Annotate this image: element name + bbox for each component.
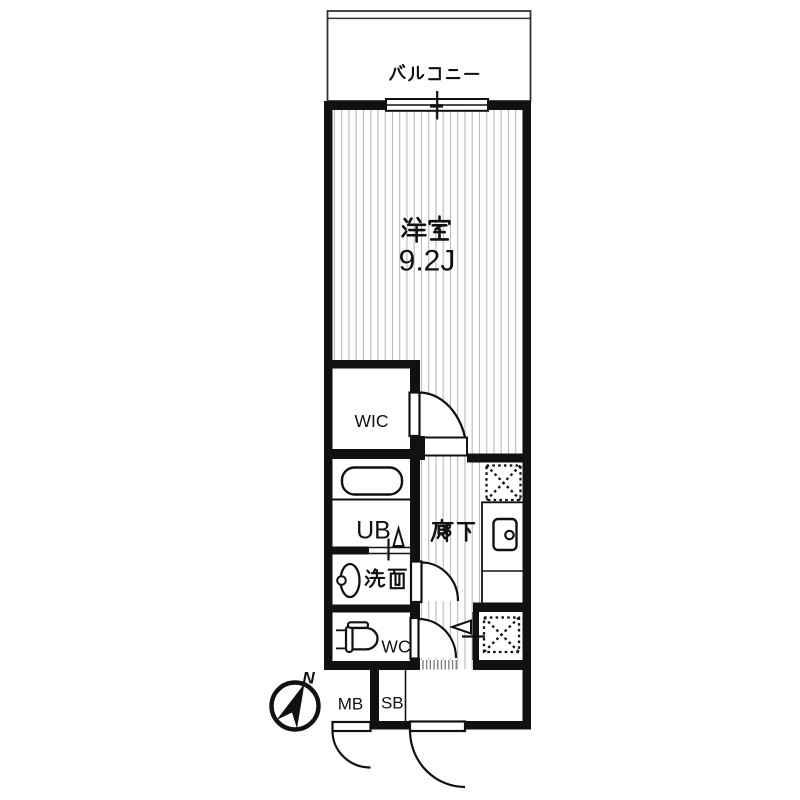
svg-text:WC: WC	[381, 637, 410, 657]
svg-text:9.2J: 9.2J	[399, 244, 456, 277]
svg-text:SB: SB	[381, 694, 404, 713]
svg-text:MB: MB	[338, 694, 364, 713]
svg-text:N: N	[302, 669, 315, 688]
svg-text:WIC: WIC	[354, 411, 388, 431]
svg-text:UB: UB	[356, 516, 391, 544]
